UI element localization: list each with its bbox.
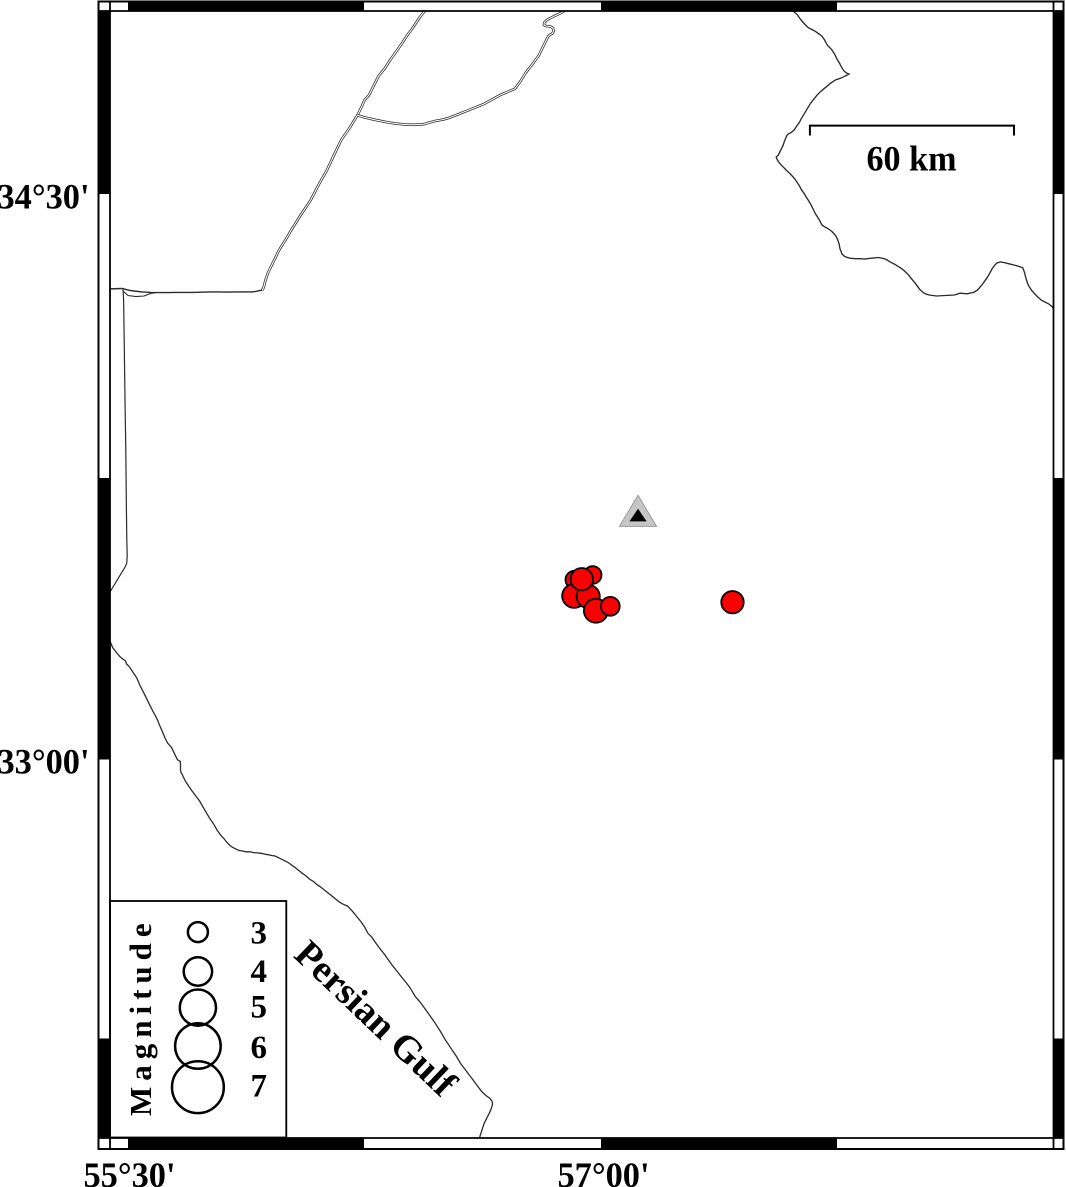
svg-text:34°30': 34°30': [0, 177, 90, 217]
svg-text:33°00': 33°00': [0, 742, 90, 782]
svg-text:Magnitude: Magnitude: [123, 917, 158, 1116]
svg-text:55°30': 55°30': [84, 1155, 176, 1187]
svg-text:7: 7: [250, 1068, 267, 1104]
svg-text:5: 5: [250, 990, 267, 1026]
svg-text:57°00': 57°00': [558, 1155, 650, 1187]
svg-text:60 km: 60 km: [867, 139, 957, 179]
svg-text:3: 3: [250, 916, 267, 952]
svg-text:6: 6: [250, 1030, 267, 1066]
svg-text:4: 4: [250, 954, 267, 990]
